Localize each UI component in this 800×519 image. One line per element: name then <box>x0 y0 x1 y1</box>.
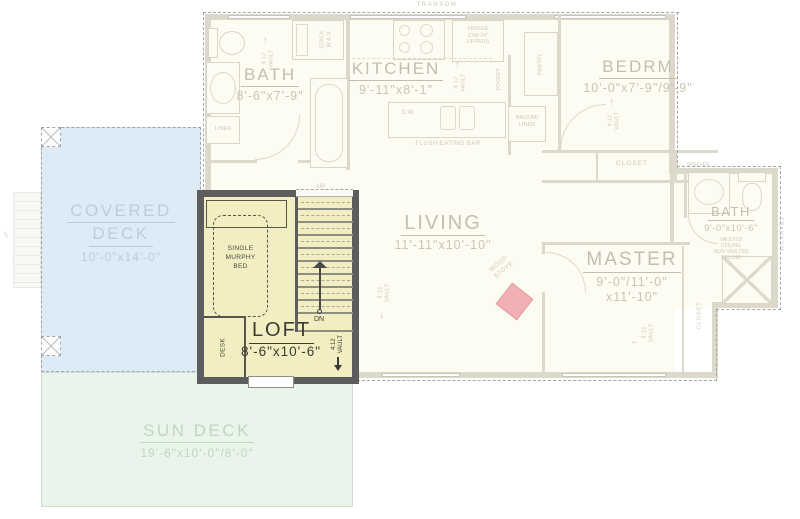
vault-label: 4:12 VAULT <box>261 43 274 75</box>
exterior-stair-up-wrap: UP <box>1 226 13 244</box>
loft-title: LOFT <box>234 319 329 344</box>
deck-post-top <box>41 127 61 147</box>
wall-hall-right <box>670 150 674 244</box>
wall-right-lower <box>712 302 718 378</box>
covered-deck-title: COVERED DECK 10'-0"x14'-0" <box>60 200 182 264</box>
roofline-left <box>203 12 204 192</box>
arrow-down-icon <box>334 365 342 371</box>
pocket-door-label: POCKET <box>496 68 503 91</box>
roofline-right-upper <box>677 12 678 168</box>
wall-master-top <box>542 242 690 245</box>
stack-wd-label: STACK W & D <box>319 22 332 58</box>
loft-dims: 8'-6"x10'-6" <box>230 344 332 359</box>
covered-deck-dims: 10'-0"x14'-0" <box>60 250 182 264</box>
toilet-bowl <box>219 31 245 55</box>
roofline-bump-top <box>677 166 781 167</box>
covered-deck-name-1: COVERED <box>67 200 175 223</box>
covered-deck-name-2: DECK <box>89 223 152 246</box>
window-kitchen <box>350 15 466 19</box>
vault-label: 4:12 VAULT <box>453 67 466 99</box>
roofline-right-lower <box>716 309 717 381</box>
master-dims-1: 9'-0"/11'-0" <box>570 275 694 289</box>
linen-label: LINEN <box>206 126 240 133</box>
room-title-master-bath: BATH 9'-0"x10'-6" VAULTED CEILING NON-VA… <box>695 205 767 261</box>
sun-deck-title: SUN DECK 19'-6"x10'-0"/8'-0" <box>112 420 282 460</box>
stair-tread <box>298 197 353 210</box>
vault-marker-bedroom: ↑ 4:12 VAULT <box>602 98 626 148</box>
stair-top-opening <box>296 189 353 197</box>
floor-plan-canvas: LINEN STACK W & D FRIDGE C/W 24" UPPERS … <box>0 0 800 519</box>
murphy-bed-label: SINGLE MURPHY BED <box>215 245 266 271</box>
vault-marker-bath: ↑ 4:12 VAULT <box>256 36 280 86</box>
stair-tread <box>298 236 353 249</box>
bathtub-inner <box>315 84 343 162</box>
kitchen-dims: 9'-11"x8'-1" <box>344 83 448 97</box>
mbath-dims: 9'-0"x10'-6" <box>695 223 767 234</box>
room-title-bedroom: BEDRM 10'-0"x7'-9"/9'-9" <box>572 58 704 95</box>
exterior-stair-up-label: UP <box>4 229 10 241</box>
stair-direction-stem <box>319 268 321 310</box>
loft-vault-label: 4:12 VAULT <box>331 329 345 359</box>
wall-closet-top <box>542 150 718 153</box>
stair-tread <box>298 210 353 223</box>
stack-wd-door <box>296 24 308 56</box>
wall-bedroom-left <box>558 14 561 152</box>
bath-dims: 8'-6"x7'-9" <box>225 89 315 103</box>
sun-deck-dims: 19'-6"x10'-0"/8'-0" <box>112 446 282 460</box>
pocket-door-label-wrap: POCKET <box>492 58 506 100</box>
bedroom-name: BEDRM <box>599 58 676 79</box>
mbath-toilet-tank <box>738 172 766 182</box>
vault-label: 4:12 VAULT <box>377 277 390 309</box>
vault-marker-kitchen: ↑ 4:12 VAULT <box>448 60 472 110</box>
vault-label: 4:12 VAULT <box>607 105 620 137</box>
shelves-label: SHELVES <box>679 162 717 168</box>
roofline-top <box>203 12 679 13</box>
deck-post-bottom <box>41 336 61 356</box>
stair-tread <box>298 301 353 314</box>
kitchen-name: KITCHEN <box>349 60 444 81</box>
living-dims: 11'-11"x10'-10" <box>380 238 506 252</box>
stair-tread <box>298 275 353 288</box>
toilet-tank <box>208 28 218 58</box>
stair-tread <box>298 288 353 301</box>
fridge-label: FRIDGE C/W 24" UPPERS <box>454 26 502 46</box>
room-title-living: LIVING 11'-11"x10'-10" <box>380 212 506 252</box>
pantry-label: PANTRY <box>538 51 545 77</box>
roofline-bump-right <box>780 166 781 310</box>
dishwasher-label: D.W. <box>394 110 422 117</box>
mbath-ceiling-note: VAULTED CEILING NON-VAULTED CEILING <box>695 237 767 261</box>
mbath-name: BATH <box>708 205 754 221</box>
sun-deck-name: SUN DECK <box>140 420 254 443</box>
wall-bath-south-left <box>205 160 257 163</box>
shower <box>722 256 772 304</box>
broom-linen-label: BROOM/ LINEN <box>509 115 545 128</box>
bedroom-dims: 10'-0"x7'-9"/9'-9" <box>572 81 704 95</box>
room-title-master: MASTER 9'-0"/11'-0" x11'-10" <box>570 250 694 304</box>
master-closet-label: CLOSET <box>697 301 704 329</box>
pantry-label-wrap: PANTRY <box>528 38 554 90</box>
burner-4 <box>420 41 433 54</box>
desk-label: DESK <box>220 329 229 365</box>
master-dims-2: x11'-10" <box>570 290 694 304</box>
vault-marker-living: ↓ 4:12 VAULT <box>372 270 396 320</box>
living-name: LIVING <box>401 212 485 236</box>
window-master-south <box>562 373 666 377</box>
burner-1 <box>399 25 410 36</box>
stair-tread <box>298 223 353 236</box>
loft-window <box>248 376 294 388</box>
burner-2 <box>420 24 433 37</box>
window-bedroom <box>554 15 666 19</box>
arrow-down-icon: ↓ <box>379 310 384 321</box>
stair-direction-arrow <box>313 261 327 268</box>
window-bath <box>228 15 290 19</box>
arrow-left-icon: ← <box>630 336 640 347</box>
burner-3 <box>399 42 410 53</box>
loft-name: LOFT <box>249 319 314 344</box>
desk-wall-top <box>204 316 246 318</box>
transom-top-label: TRANSOM <box>405 2 469 9</box>
mbath-sink-oval <box>694 179 724 205</box>
flush-bar-label: FLUSH EATING BAR <box>392 141 504 148</box>
bedroom-closet-label: CLOSET <box>600 160 664 168</box>
stack-wd-label-wrap: STACK W & D <box>308 22 344 58</box>
roofline-bump-bottom <box>716 309 781 310</box>
roofline-bottom <box>357 380 717 381</box>
wall-mbath-left <box>684 168 687 218</box>
wall-closet-div1 <box>596 150 598 183</box>
window-living-south <box>382 373 460 377</box>
master-name: MASTER <box>583 250 680 273</box>
stair-direction-dot <box>317 309 322 314</box>
exterior-stair <box>13 192 41 288</box>
vault-label: 4:12 VAULT <box>641 317 654 349</box>
wall-master-left-b <box>542 292 545 378</box>
wall-master-left-a <box>542 242 545 254</box>
loft-room: SINGLE MURPHY BED DESK DN LOFT 8'- <box>197 190 359 384</box>
room-title-kitchen: KITCHEN 9'-11"x8'-1" <box>344 60 448 97</box>
vault-marker-master: ← 4:12 VAULT <box>636 310 660 360</box>
sun-deck-top-dash <box>41 371 205 372</box>
